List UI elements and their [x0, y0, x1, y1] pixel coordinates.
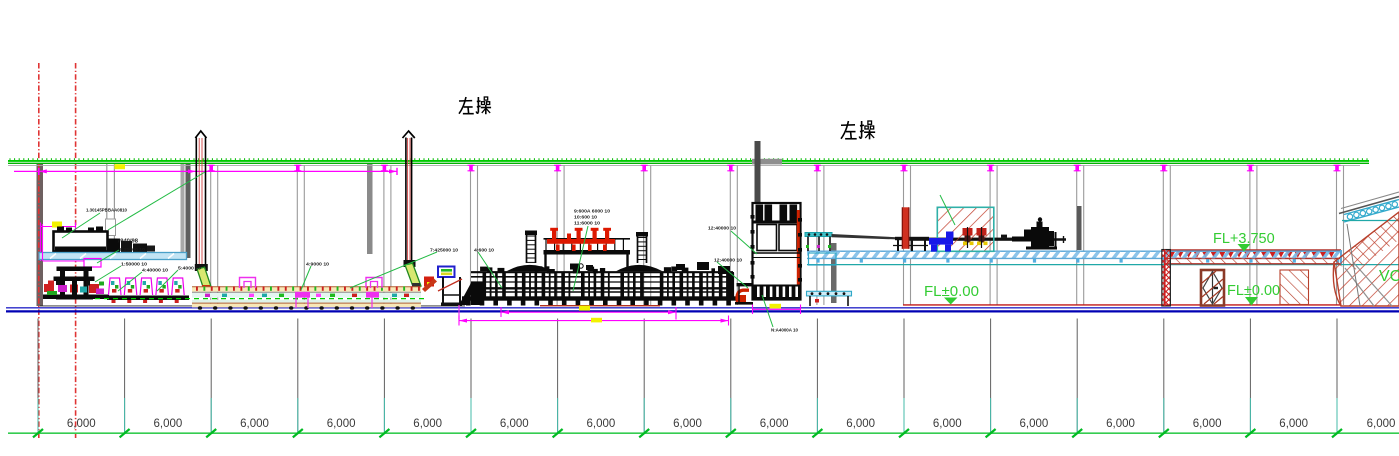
- svg-text:FL±0.00: FL±0.00: [924, 283, 979, 300]
- svg-text:4:9000 10: 4:9000 10: [306, 262, 330, 267]
- svg-text:9:600A 6000 10: 9:600A 6000 10: [574, 209, 611, 214]
- svg-text:VC: VC: [1379, 268, 1399, 285]
- svg-text:1.30145PBBAA0810: 1.30145PBBAA0810: [86, 208, 128, 213]
- svg-text:12:40000 10: 12:40000 10: [708, 226, 737, 231]
- svg-text:6,000: 6,000: [1279, 418, 1308, 430]
- svg-text:6,000: 6,000: [413, 418, 442, 430]
- svg-text:12:40000 10: 12:40000 10: [714, 258, 743, 263]
- svg-text:6,000: 6,000: [587, 418, 616, 430]
- svg-text:4:40000 10: 4:40000 10: [142, 268, 169, 273]
- svg-text:6,000: 6,000: [846, 418, 875, 430]
- svg-text:FL±0.00: FL±0.00: [1227, 283, 1280, 299]
- svg-text:7:25000 10: 7:25000 10: [119, 247, 146, 252]
- svg-text:7:425000 10: 7:425000 10: [430, 248, 459, 253]
- svg-text:5:4000 10: 5:4000 10: [178, 266, 202, 271]
- svg-text:6,000: 6,000: [327, 418, 356, 430]
- svg-text:6,000: 6,000: [1106, 418, 1135, 430]
- svg-text:1:50000 10: 1:50000 10: [121, 262, 148, 267]
- svg-text:6,000: 6,000: [1367, 418, 1396, 430]
- svg-text:6,000: 6,000: [240, 418, 269, 430]
- svg-text:4:600 10: 4:600 10: [474, 248, 495, 253]
- svg-text:6,000: 6,000: [500, 418, 529, 430]
- svg-text:6,000: 6,000: [760, 418, 789, 430]
- svg-text:6,000: 6,000: [67, 418, 96, 430]
- svg-text:6,000: 6,000: [933, 418, 962, 430]
- svg-text:6,000: 6,000: [1020, 418, 1049, 430]
- svg-text:6,000: 6,000: [673, 418, 702, 430]
- svg-text:10:600 10: 10:600 10: [574, 215, 598, 220]
- svg-text:11:6000 10: 11:6000 10: [574, 221, 601, 226]
- svg-text:7940/98: 7940/98: [117, 239, 138, 245]
- svg-text:6,000: 6,000: [154, 418, 183, 430]
- svg-text:6,000: 6,000: [1193, 418, 1222, 430]
- svg-text:N:A4000A 10: N:A4000A 10: [771, 328, 799, 333]
